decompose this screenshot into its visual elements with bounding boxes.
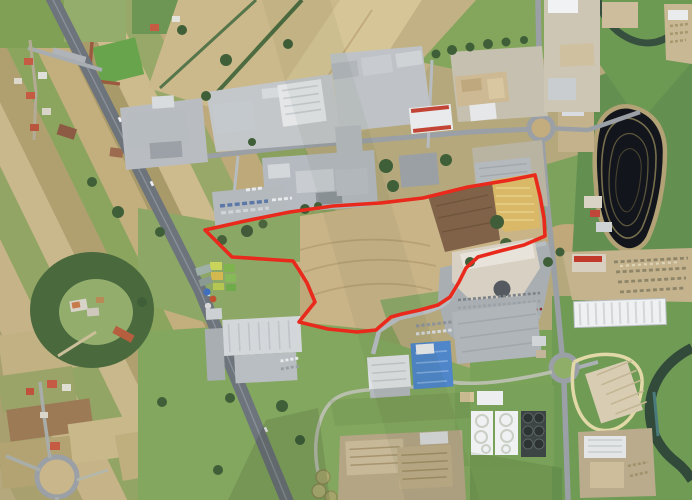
roundabout-southwest bbox=[37, 457, 77, 497]
red-roof-shed bbox=[590, 210, 600, 217]
south-facility bbox=[578, 428, 656, 498]
recycling-yard bbox=[562, 248, 692, 302]
roundabout-north bbox=[529, 116, 553, 140]
red-striped-building bbox=[409, 104, 453, 134]
estate-tree-ring bbox=[30, 252, 154, 368]
striped-warehouse bbox=[574, 298, 667, 327]
map-canvas bbox=[0, 0, 692, 500]
satellite-map[interactable] bbox=[0, 0, 692, 500]
